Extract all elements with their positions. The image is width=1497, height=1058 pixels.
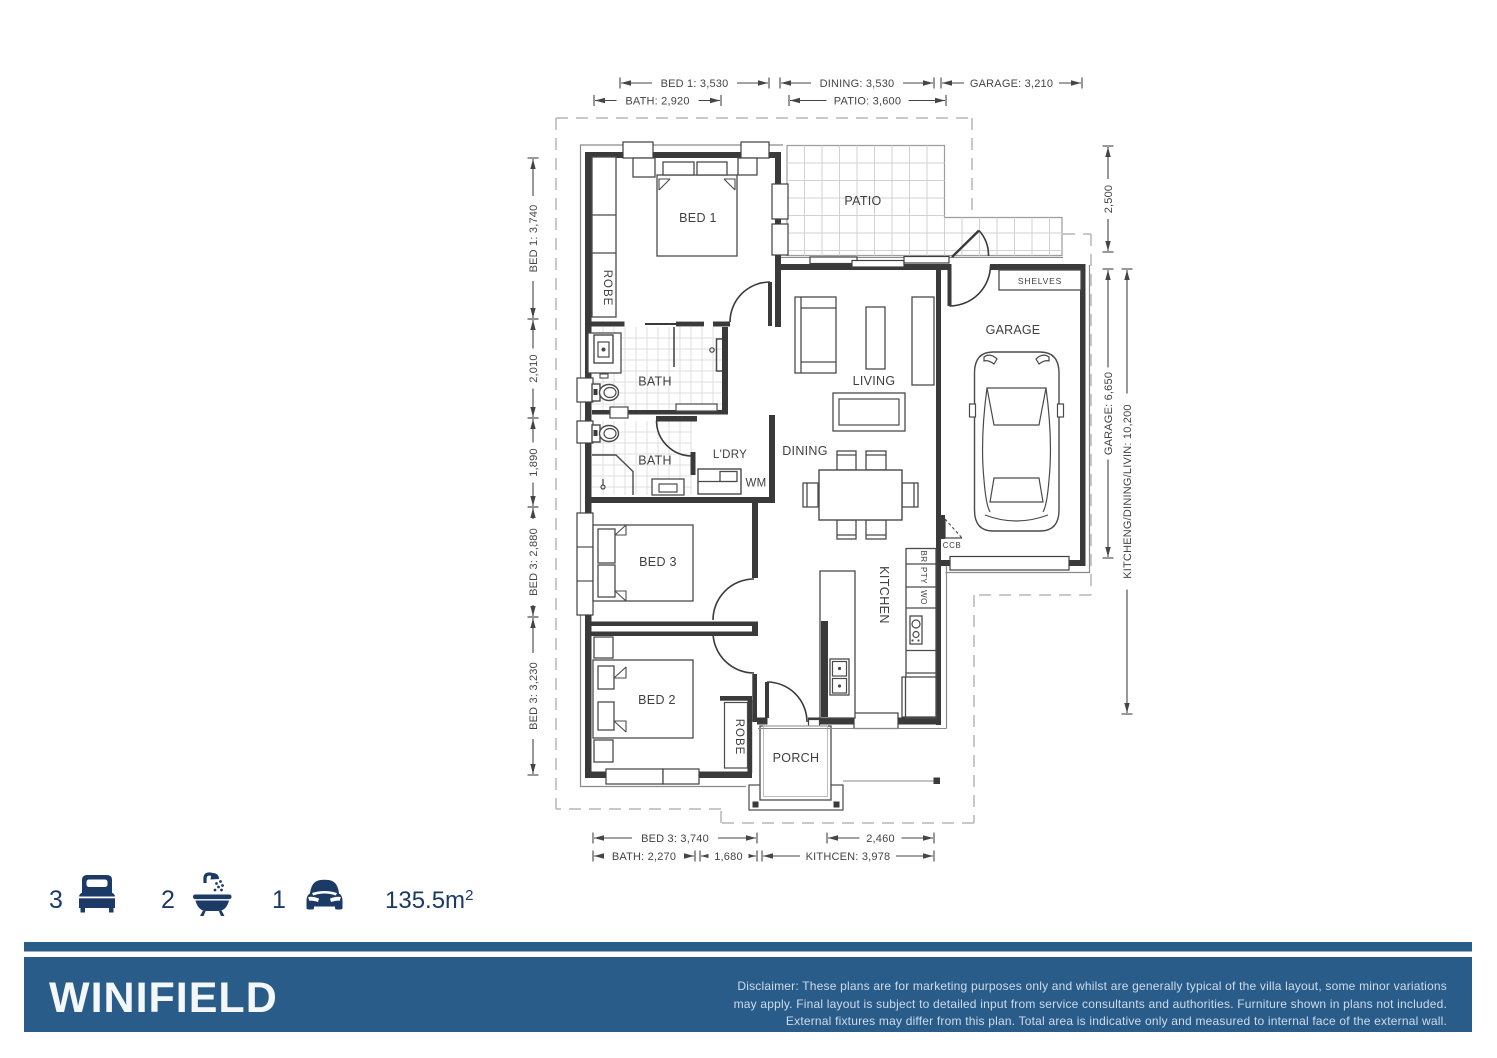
svg-text:L'DRY: L'DRY xyxy=(713,449,747,461)
svg-text:BED 3: 3,740: BED 3: 3,740 xyxy=(641,833,709,845)
svg-text:2: 2 xyxy=(161,886,175,914)
svg-text:DINING: 3,530: DINING: 3,530 xyxy=(820,78,895,90)
svg-text:BATH: BATH xyxy=(638,375,672,389)
svg-text:BED 3: 3,230: BED 3: 3,230 xyxy=(528,662,540,730)
svg-text:KITCHEN: KITCHEN xyxy=(877,566,891,624)
svg-text:BED 2: BED 2 xyxy=(638,693,676,707)
svg-text:135.5m2: 135.5m2 xyxy=(385,887,473,914)
svg-text:BED 1: 3,740: BED 1: 3,740 xyxy=(528,205,540,273)
svg-text:1,890: 1,890 xyxy=(528,448,540,477)
svg-text:BED 3: 2,880: BED 3: 2,880 xyxy=(528,528,540,596)
svg-text:WM: WM xyxy=(745,478,766,490)
svg-text:PORCH: PORCH xyxy=(773,751,820,765)
svg-text:3: 3 xyxy=(49,886,63,914)
svg-text:KITHCEN: 3,978: KITHCEN: 3,978 xyxy=(806,851,891,863)
svg-text:External fixtures may differ f: External fixtures may differ from this p… xyxy=(786,1014,1447,1028)
svg-text:DINING: DINING xyxy=(782,444,828,458)
svg-text:BATH: 2,920: BATH: 2,920 xyxy=(625,95,689,107)
svg-text:1,680: 1,680 xyxy=(714,851,743,863)
svg-text:LIVING: LIVING xyxy=(853,374,896,388)
svg-text:ROBE: ROBE xyxy=(733,719,745,756)
svg-text:WINIFIELD: WINIFIELD xyxy=(49,974,278,1022)
svg-text:1: 1 xyxy=(272,886,286,914)
svg-text:2,500: 2,500 xyxy=(1103,185,1115,214)
svg-text:CCB: CCB xyxy=(943,541,961,550)
svg-text:may apply. Final layout is sub: may apply. Final layout is subject to de… xyxy=(734,997,1447,1011)
svg-text:WO: WO xyxy=(919,590,928,605)
svg-text:ROBE: ROBE xyxy=(601,270,613,307)
svg-text:2,010: 2,010 xyxy=(528,354,540,383)
svg-text:PATIO: 3,600: PATIO: 3,600 xyxy=(834,95,901,107)
svg-text:PTY: PTY xyxy=(919,567,928,584)
svg-text:BATH: BATH xyxy=(638,454,672,468)
svg-text:BATH: 2,270: BATH: 2,270 xyxy=(612,851,676,863)
svg-text:BED 1: 3,530: BED 1: 3,530 xyxy=(661,78,729,90)
svg-text:Disclaimer: These plans are fo: Disclaimer: These plans are for marketin… xyxy=(737,979,1447,993)
svg-text:SHELVES: SHELVES xyxy=(1018,276,1062,286)
svg-text:KITCHENG/DINING/LIVIN: 10,200: KITCHENG/DINING/LIVIN: 10,200 xyxy=(1122,404,1134,579)
svg-text:BED 3: BED 3 xyxy=(639,555,677,569)
svg-text:2,460: 2,460 xyxy=(866,833,895,845)
svg-text:GARAGE: 6,650: GARAGE: 6,650 xyxy=(1103,372,1115,455)
svg-text:GARAGE: 3,210: GARAGE: 3,210 xyxy=(970,78,1053,90)
svg-text:BED 1: BED 1 xyxy=(679,211,717,225)
svg-text:GARAGE: GARAGE xyxy=(986,323,1041,337)
svg-text:PATIO: PATIO xyxy=(844,194,881,208)
svg-text:BR: BR xyxy=(919,550,928,562)
